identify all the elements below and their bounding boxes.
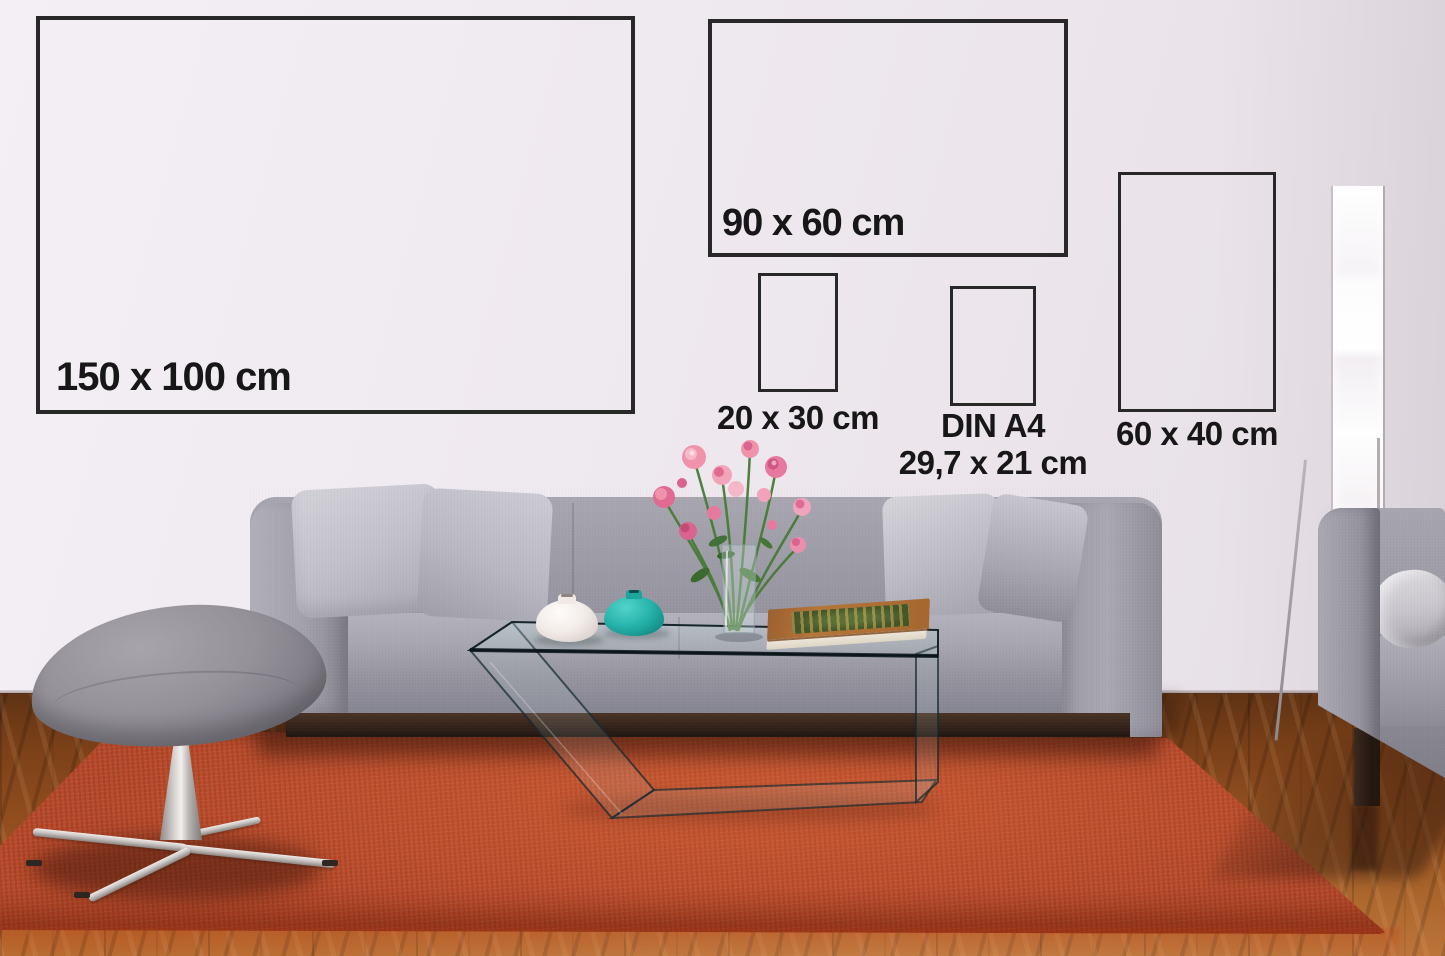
size-label-150x100: 150 x 100 cm — [56, 355, 291, 400]
size-label-90x60: 90 x 60 cm — [722, 202, 904, 245]
white-vase — [536, 600, 598, 642]
size-frame-20x30 — [758, 273, 838, 392]
size-label-60x40: 60 x 40 cm — [1087, 416, 1307, 453]
chair-wood-leg — [1354, 728, 1380, 806]
table-side-panel — [916, 646, 938, 802]
stool-foot — [322, 860, 338, 866]
stool-leg — [88, 846, 192, 902]
size-frame-90x60: 90 x 60 cm — [708, 19, 1068, 257]
stool-column — [160, 738, 202, 840]
floor-lamp-support — [1377, 438, 1380, 512]
stool-foot — [74, 892, 90, 898]
size-frame-150x100: 150 x 100 cm — [36, 16, 635, 414]
table-foot — [612, 780, 936, 818]
flower-bouquet — [630, 425, 830, 665]
throw-pillow — [976, 492, 1089, 624]
size-frame-din-a4 — [950, 286, 1036, 406]
footstool — [18, 598, 348, 956]
size-label-din-a4: DIN A4 29,7 x 21 cm — [873, 408, 1113, 482]
stool-leg — [180, 844, 336, 868]
size-label-din-a4-dimensions: 29,7 x 21 cm — [873, 445, 1113, 482]
chair-leg-reflection — [1352, 804, 1378, 870]
size-label-din-a4-name: DIN A4 — [873, 408, 1113, 445]
white-vase-mouth — [561, 594, 573, 597]
armchair-seat — [1374, 636, 1445, 726]
size-frame-60x40 — [1118, 172, 1276, 412]
living-room-size-guide-scene: 150 x 100 cm 90 x 60 cm 20 x 30 cm DIN A… — [0, 0, 1445, 956]
stool-foot — [26, 860, 42, 866]
